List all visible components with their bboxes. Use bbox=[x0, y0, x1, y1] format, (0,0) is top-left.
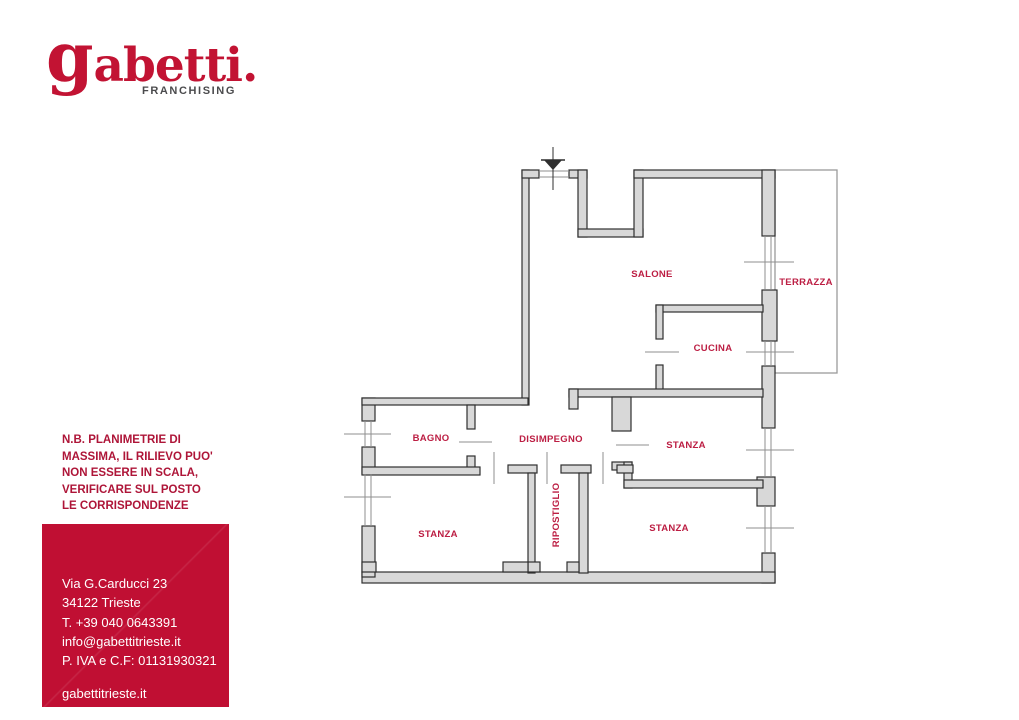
room-label-stanza-mid: STANZA bbox=[666, 440, 706, 451]
terrace-outline bbox=[775, 170, 837, 373]
wall-leftwing-top bbox=[362, 398, 528, 405]
room-label-terrazza: TERRAZZA bbox=[779, 277, 833, 288]
wall-ripostiglio-left bbox=[528, 473, 535, 573]
floor-plan: SALONE TERRAZZA CUCINA BAGNO DISIMPEGNO … bbox=[0, 0, 1019, 720]
wall-salone-bottom bbox=[569, 389, 763, 397]
wall-notch-left bbox=[578, 170, 587, 237]
wall-corridor-left bbox=[522, 170, 529, 405]
window-door-lines bbox=[344, 171, 794, 552]
wall-pier bbox=[612, 397, 631, 431]
wall-step-right bbox=[503, 562, 528, 572]
wall-right-1 bbox=[762, 170, 775, 236]
room-label-disimpegno: DISIMPEGNO bbox=[519, 434, 583, 445]
wall-stub bbox=[569, 389, 578, 409]
wall-notch-bottom bbox=[578, 229, 643, 237]
wall-ripostiglio-foot-left bbox=[528, 562, 540, 572]
wall-ripostiglio-right bbox=[579, 473, 588, 573]
planimetry-flyer: gabetti. FRANCHISING N.B. PLANIMETRIE DI… bbox=[0, 0, 1019, 720]
wall-cucina-left-upper bbox=[656, 305, 663, 339]
wall-hall-seg3 bbox=[561, 465, 591, 473]
wall-midstanza-bottom bbox=[624, 480, 763, 488]
wall-right-2 bbox=[762, 290, 777, 341]
entrance-door-symbol bbox=[541, 147, 565, 190]
wall-bottom bbox=[362, 572, 775, 583]
room-label-stanza-br: STANZA bbox=[649, 523, 689, 534]
wall-top-salone bbox=[634, 170, 775, 178]
wall-step-left bbox=[362, 562, 376, 572]
room-label-salone: SALONE bbox=[631, 269, 672, 280]
wall-ripostiglio-foot-right bbox=[567, 562, 579, 572]
wall-bagno-bottom bbox=[362, 467, 480, 475]
wall-entry-left bbox=[522, 170, 539, 178]
room-label-ripostiglio: RIPOSTIGLIO bbox=[551, 483, 562, 548]
wall-bagno-right-upper bbox=[467, 405, 475, 429]
room-label-stanza-bl: STANZA bbox=[418, 529, 458, 540]
wall-cucina-left-lower bbox=[656, 365, 663, 391]
room-label-cucina: CUCINA bbox=[694, 343, 733, 354]
wall-cucina-top bbox=[656, 305, 763, 312]
walls bbox=[362, 170, 777, 583]
wall-hall-seg4 bbox=[617, 465, 633, 473]
wall-notch-right bbox=[634, 170, 643, 237]
wall-right-3 bbox=[762, 366, 775, 428]
wall-hall-seg2 bbox=[508, 465, 537, 473]
room-label-bagno: BAGNO bbox=[413, 433, 450, 444]
